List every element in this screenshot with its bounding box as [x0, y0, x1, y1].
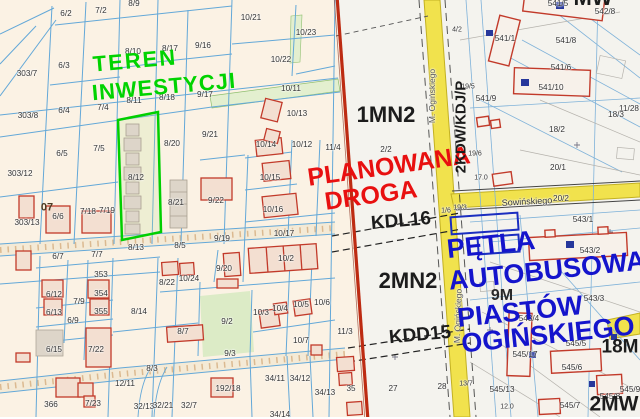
map-root: 6/27/28/9303/76/38/108/179/1610/2110/231… — [0, 0, 640, 417]
map-canvas[interactable] — [0, 0, 640, 417]
